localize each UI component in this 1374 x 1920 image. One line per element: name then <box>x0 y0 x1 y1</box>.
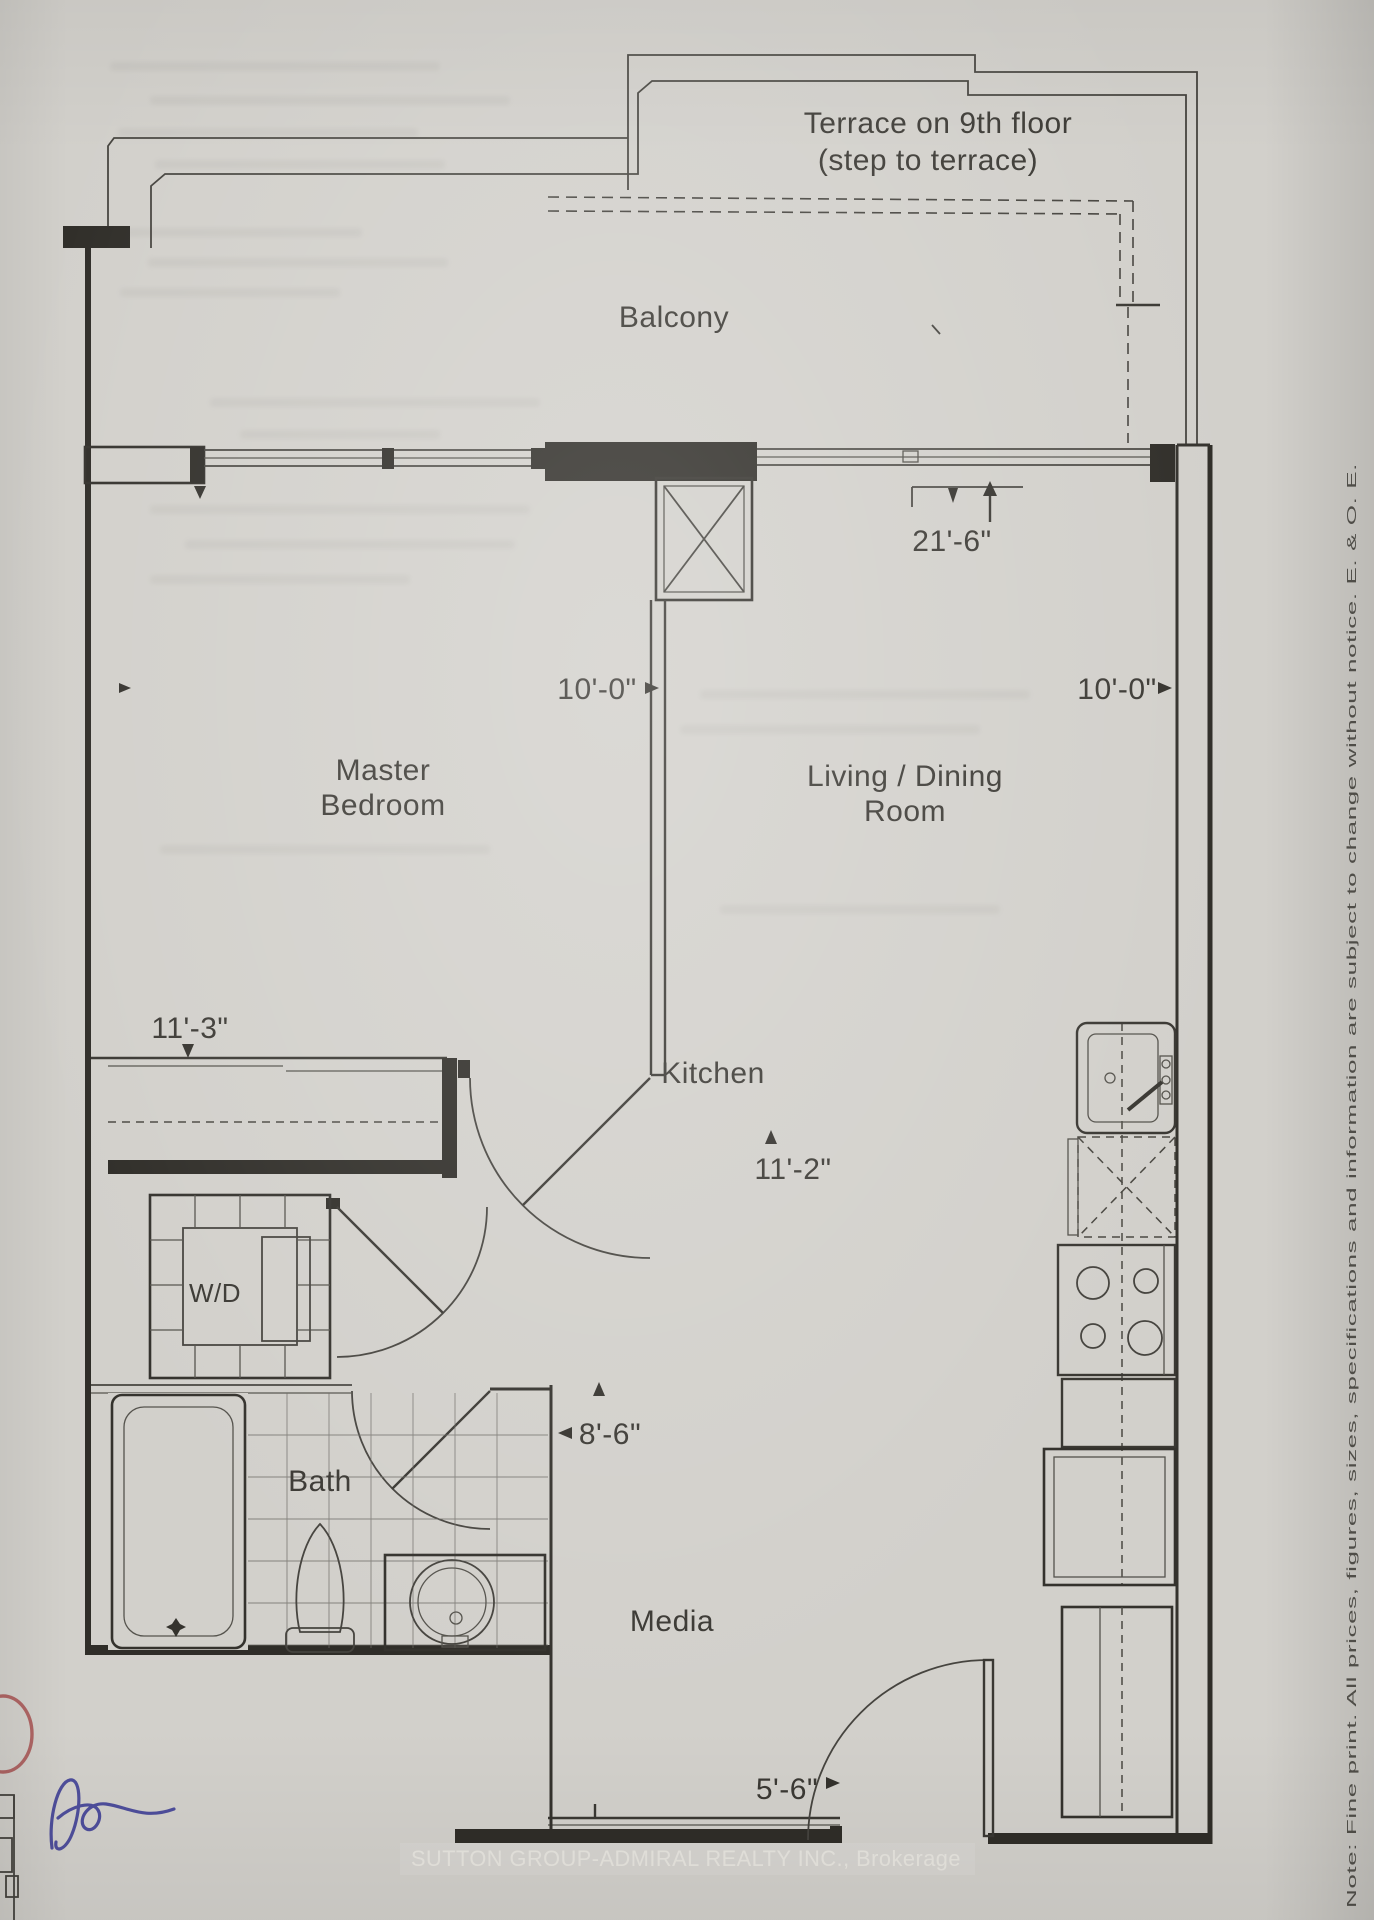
wall-pier-left <box>85 447 204 483</box>
dim-kitchen-length: 11'-2" <box>754 1153 831 1186</box>
living-window-balcony-door <box>757 444 1175 482</box>
dim-entry-width: 5'-6" <box>756 1773 818 1806</box>
wall-bottom-left <box>455 1829 840 1843</box>
refrigerator <box>1044 1449 1175 1585</box>
dim-living-width: 10'-0" <box>1077 673 1156 706</box>
bedroom-closet <box>91 1058 457 1178</box>
bathroom <box>91 1385 548 1652</box>
wall-center-solid <box>545 442 757 481</box>
floorplan-drawing: Terrace on 9th floor (step to terrace) B… <box>0 0 1374 1920</box>
bedroom-window <box>204 448 545 469</box>
counter-section <box>1062 1379 1175 1447</box>
interior-wall-bedroom-living <box>651 600 665 1075</box>
red-circle-mark <box>0 1696 32 1772</box>
fine-print-note: Note: Fine print. All prices, figures, s… <box>1344 463 1359 1908</box>
faucet-lever <box>1128 1082 1162 1110</box>
handwritten-initials-scribble <box>51 1780 174 1849</box>
bath-tile-floor <box>245 1393 548 1648</box>
wall-cap-top-left <box>63 226 130 248</box>
living-dining-label-line2: Room <box>864 795 946 828</box>
living-dining-label-line1: Living / Dining <box>807 760 1003 793</box>
labels: Terrace on 9th floor (step to terrace) B… <box>151 107 1156 1806</box>
bedroom-door <box>458 1060 650 1258</box>
balcony-door-arrow <box>912 481 1023 522</box>
terrace-label-line1: Terrace on 9th floor <box>804 107 1072 140</box>
entry-door <box>808 1660 993 1843</box>
bathtub <box>108 1393 248 1650</box>
entry-closet <box>1062 1607 1172 1817</box>
hall-door <box>326 1198 487 1357</box>
master-bedroom-label-line1: Master <box>336 754 431 787</box>
bath-vanity <box>385 1555 545 1650</box>
terrace-label-line2: (step to terrace) <box>818 144 1038 177</box>
small-tick-mark <box>932 325 940 334</box>
scanned-floorplan-photo: { "colors": { "paper": "#d2d0cb", "ink":… <box>0 0 1374 1920</box>
laundry-label: W/D <box>189 1278 241 1308</box>
media-label: Media <box>630 1605 714 1638</box>
washer-dryer-unit <box>262 1237 310 1341</box>
brokerage-watermark: SUTTON GROUP-ADMIRAL REALTY INC., Broker… <box>411 1846 961 1871</box>
hand-annotations <box>0 1696 174 1920</box>
dim-hall-width: 8'-6" <box>579 1418 641 1451</box>
stove-cooktop <box>1058 1245 1175 1375</box>
master-bedroom-label-line2: Bedroom <box>320 789 445 822</box>
kitchen-sink <box>1077 1023 1175 1133</box>
shaft-x-box <box>656 478 752 600</box>
page-edge-fragment <box>0 1795 18 1920</box>
bath-door <box>352 1389 551 1529</box>
dim-master-length: 11'-3" <box>151 1012 228 1045</box>
dim-balcony-length: 21'-6" <box>912 525 991 558</box>
wall-bottom-right <box>988 1833 1212 1844</box>
dim-master-width: 10'-0" <box>557 673 636 706</box>
closet-end-wall <box>442 1058 457 1178</box>
top-wall-and-windows <box>85 442 1175 522</box>
balcony-label: Balcony <box>619 301 729 334</box>
kitchen-counter-run <box>1044 1023 1175 1817</box>
toilet <box>286 1524 354 1652</box>
bath-label: Bath <box>288 1465 352 1498</box>
kitchen-label: Kitchen <box>661 1057 765 1090</box>
doors <box>326 1060 993 1843</box>
